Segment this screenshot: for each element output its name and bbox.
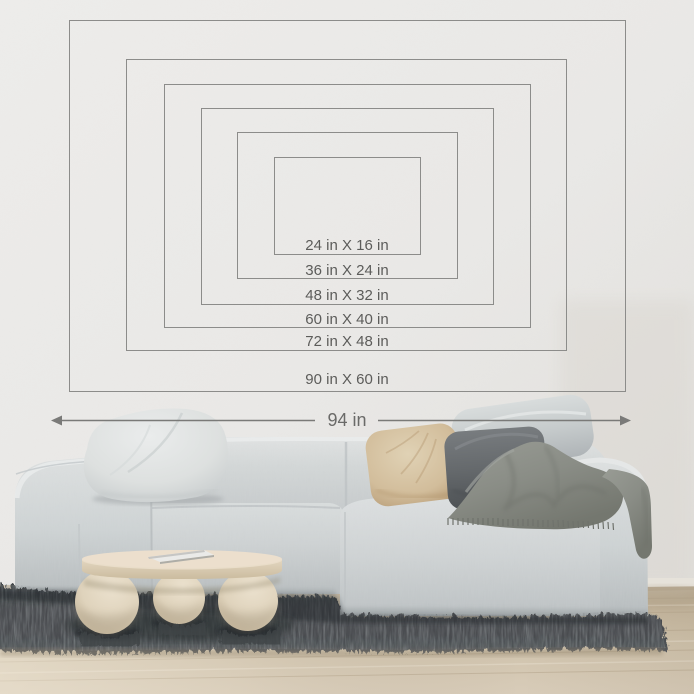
svg-text:36 in X 24 in: 36 in X 24 in bbox=[305, 262, 388, 279]
svg-text:60 in X 40 in: 60 in X 40 in bbox=[305, 311, 388, 328]
svg-text:48 in X 32 in: 48 in X 32 in bbox=[305, 287, 388, 304]
svg-text:72 in X 48 in: 72 in X 48 in bbox=[305, 333, 388, 350]
svg-text:94 in: 94 in bbox=[327, 410, 366, 430]
svg-text:24 in X 16 in: 24 in X 16 in bbox=[305, 237, 388, 254]
svg-text:90 in X 60 in: 90 in X 60 in bbox=[305, 371, 388, 388]
